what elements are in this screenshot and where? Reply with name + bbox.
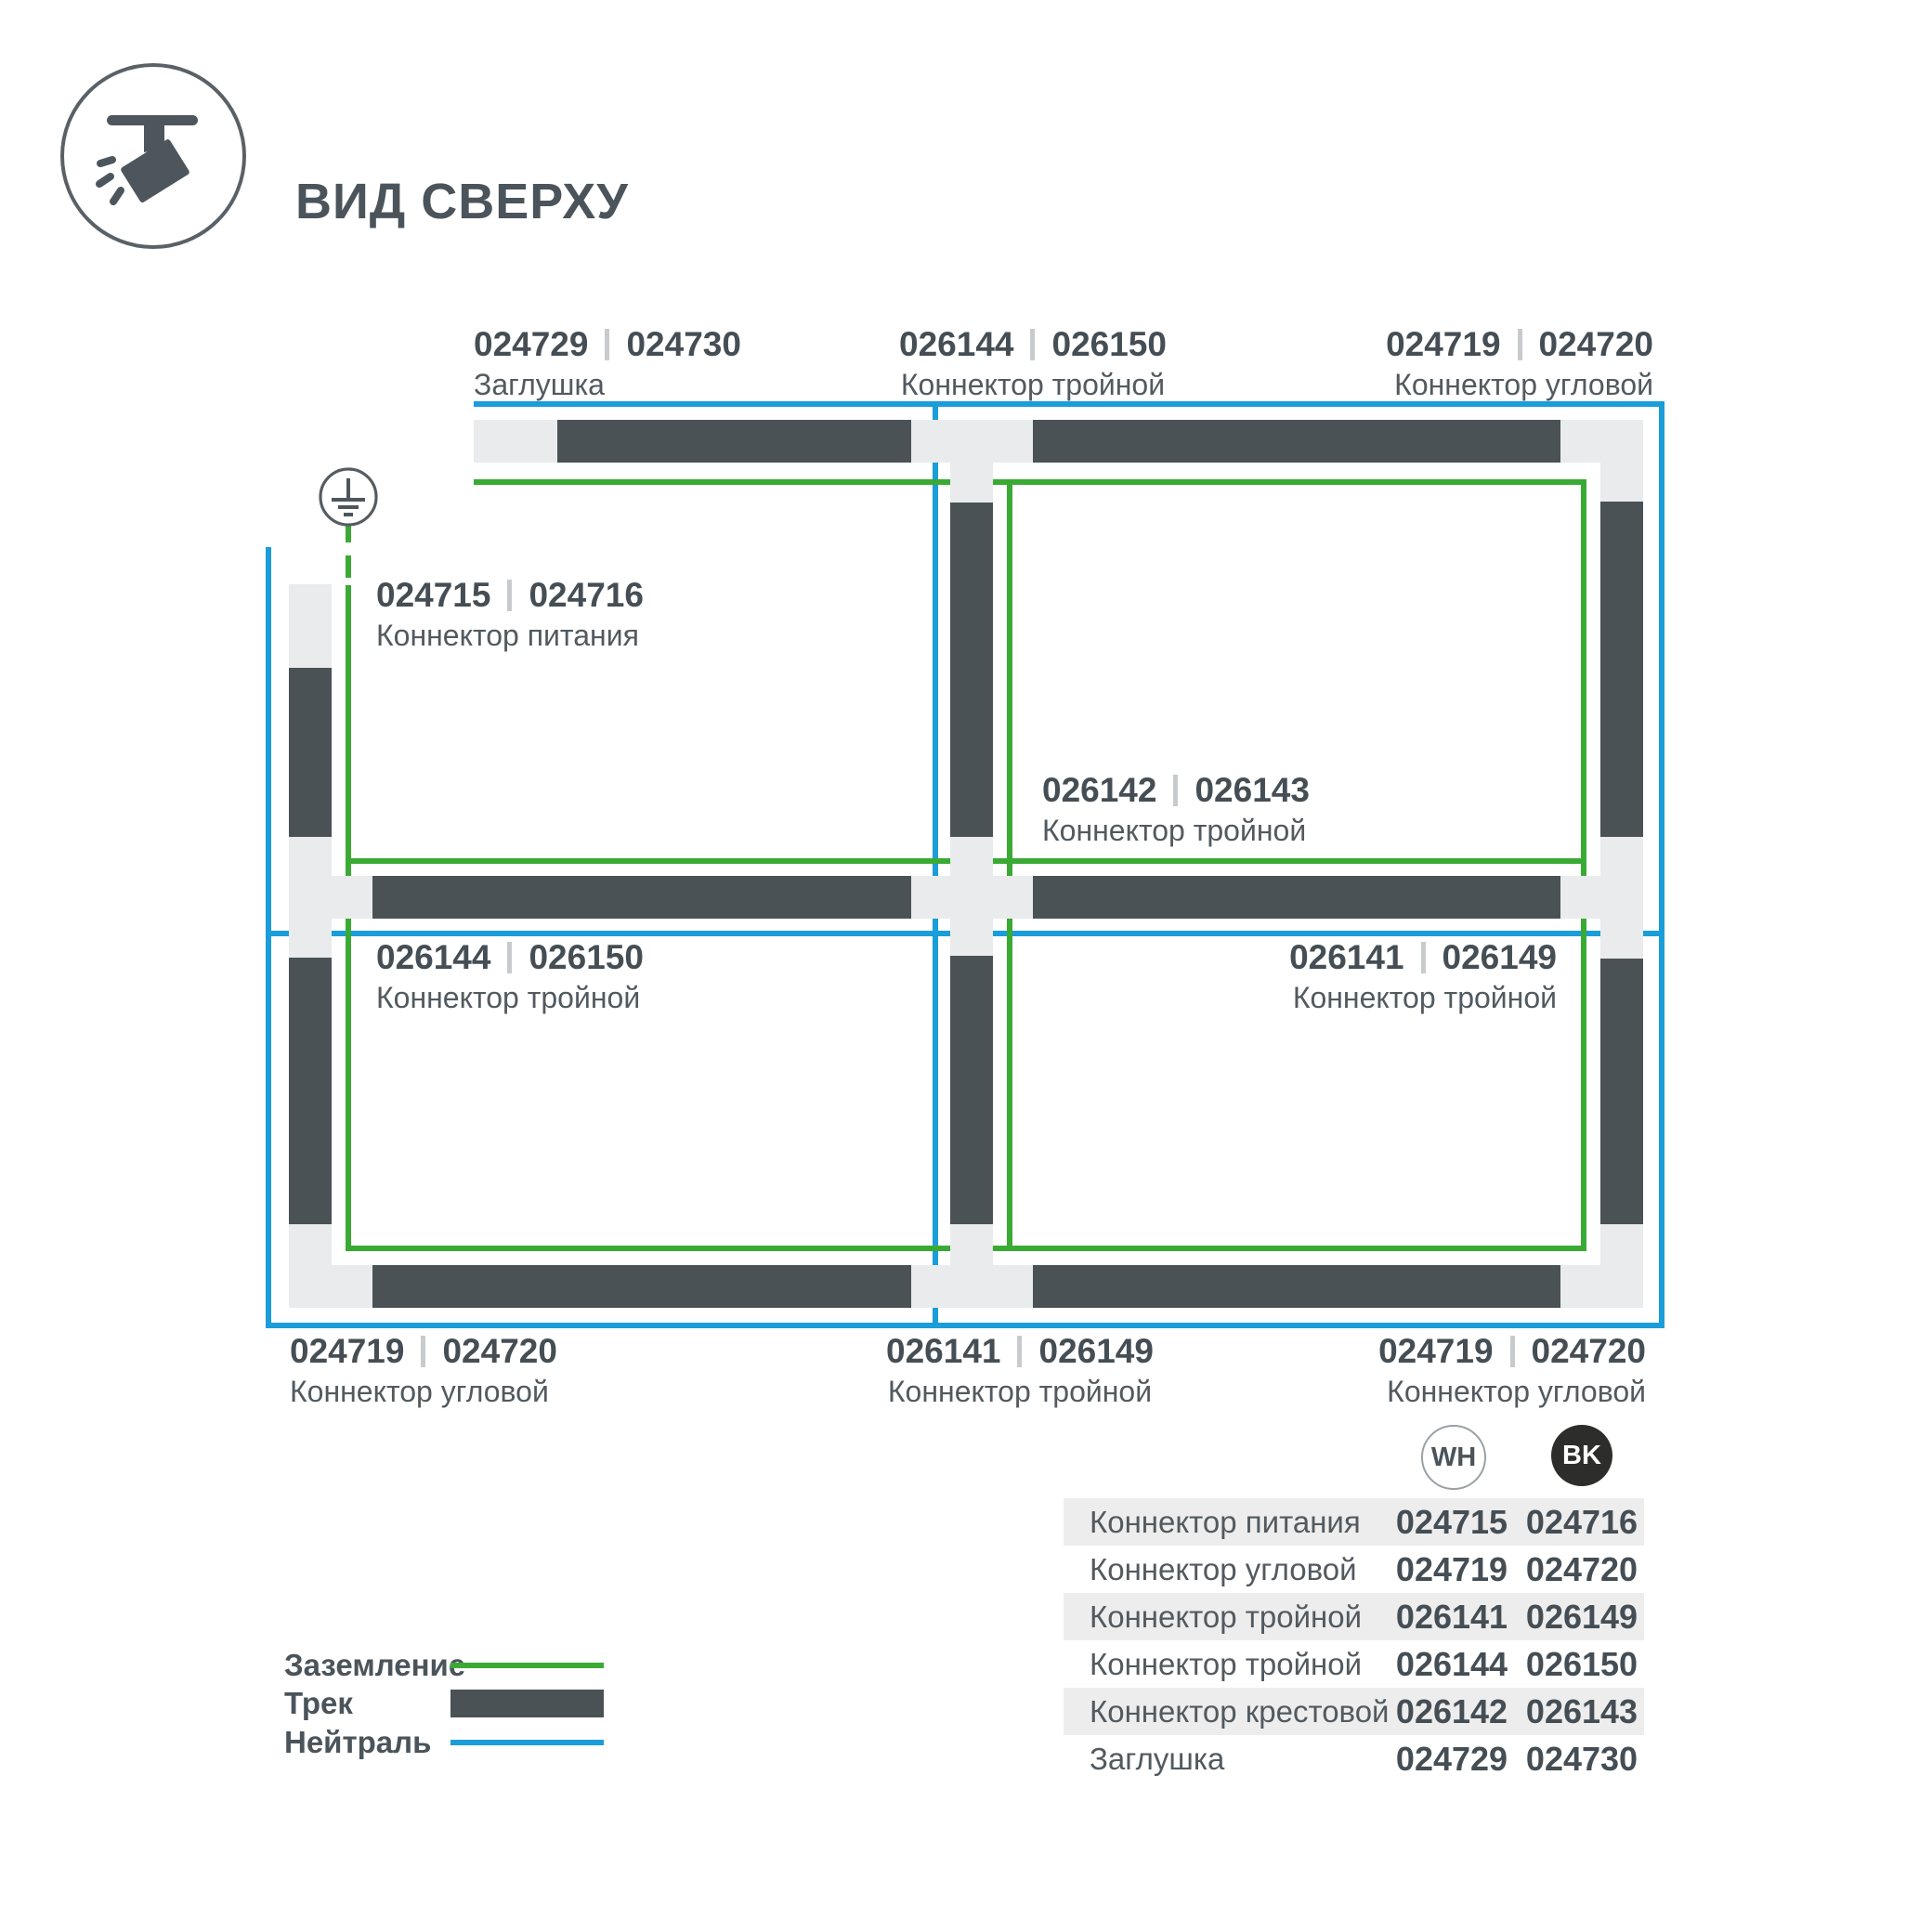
part-label-corner-top-right: 024719024720 Коннектор угловой [1386, 327, 1653, 399]
row-name: Коннектор угловой [1090, 1546, 1357, 1593]
part-name: Коннектор тройной [901, 370, 1165, 399]
table-row: Коннектор угловой 024719 024720 [1064, 1546, 1644, 1593]
code-wh: 024729 [474, 327, 588, 361]
table-row: Коннектор тройной 026141 026149 [1064, 1593, 1644, 1640]
part-codes: 024715024716 [376, 578, 644, 612]
part-label-t-connector-left: 026144026150 Коннектор тройной [376, 940, 644, 1012]
row-code-bk: 024716 [1508, 1498, 1656, 1546]
neutral-line-middle-vertical [933, 401, 938, 1328]
power-connector-block-left [289, 584, 332, 668]
ground-line-center-vertical [1007, 479, 1012, 1251]
part-label-cross-connector: 026142026143 Коннектор тройной [1042, 773, 1310, 845]
page-title: ВИД СВЕРХУ [295, 173, 629, 230]
top-view-scheme-page: ВИД СВЕРХУ [0, 0, 1932, 1932]
neutral-line-right [1659, 401, 1664, 1328]
row-code-wh: 026142 [1377, 1688, 1526, 1735]
ground-line-top-left [474, 479, 950, 485]
row-name: Коннектор крестовой [1090, 1688, 1390, 1735]
table-row: Коннектор крестовой 026142 026143 [1064, 1688, 1644, 1735]
corner-connector-block-bottom-right [1560, 1265, 1643, 1308]
code-bk: 026149 [1442, 940, 1557, 974]
track-segment [950, 956, 993, 1224]
color-chip-black-label: BK [1562, 1441, 1601, 1471]
track-segment [372, 1265, 911, 1308]
t-connector-block-left [289, 837, 332, 958]
part-label-power-connector: 024715024716 Коннектор питания [376, 578, 644, 650]
t-connector-block-bottom-stem [950, 1224, 993, 1265]
part-label-end-cap: 024729024730 Заглушка [474, 327, 741, 399]
t-connector-block-left-arm [332, 876, 372, 919]
part-name: Коннектор тройной [376, 983, 644, 1012]
code-wh: 026141 [886, 1334, 1000, 1368]
neutral-line-left [266, 547, 271, 1328]
t-connector-block-bottom [911, 1265, 1033, 1308]
track-segment [289, 958, 332, 1224]
code-separator [421, 1336, 425, 1367]
ground-lead-dashed-line [343, 520, 354, 589]
ground-line-top-right [993, 479, 1586, 485]
cross-connector-block-horizontal [911, 876, 1033, 919]
track-segment [557, 420, 911, 463]
track-segment [1033, 420, 1560, 463]
row-code-wh: 024719 [1377, 1546, 1526, 1593]
earth-ground-icon [318, 466, 379, 528]
part-name: Заглушка [474, 370, 741, 399]
ground-line-bottom-left [346, 1246, 950, 1251]
t-connector-block-top [911, 420, 1033, 463]
track-spotlight-icon [59, 61, 248, 251]
part-name: Коннектор угловой [1394, 370, 1653, 399]
t-connector-block-right [1600, 837, 1643, 959]
code-wh: 026142 [1042, 773, 1156, 807]
table-row: Заглушка 024729 024730 [1064, 1735, 1644, 1782]
code-bk: 024720 [442, 1334, 556, 1368]
legend-ground-swatch [450, 1663, 604, 1668]
part-name: Коннектор питания [376, 620, 644, 650]
part-label-t-connector-top: 026144026150 Коннектор тройной [899, 327, 1167, 399]
code-separator [1518, 329, 1522, 360]
code-bk: 026150 [1052, 327, 1167, 361]
part-codes: 024729024730 [474, 327, 741, 361]
row-name: Коннектор питания [1090, 1498, 1361, 1546]
row-code-bk: 024730 [1508, 1735, 1656, 1782]
color-chip-white: WH [1421, 1425, 1486, 1490]
part-name: Коннектор тройной [1293, 983, 1557, 1012]
color-chip-black: BK [1551, 1425, 1612, 1486]
code-separator [507, 580, 512, 611]
code-wh: 026144 [376, 940, 490, 974]
track-segment [372, 876, 911, 919]
part-codes: 026141026149 [886, 1334, 1154, 1368]
part-name: Коннектор тройной [1042, 816, 1310, 845]
code-separator [1173, 775, 1178, 806]
code-bk: 026150 [529, 940, 643, 974]
row-name: Коннектор тройной [1090, 1640, 1362, 1688]
color-chip-white-label: WH [1431, 1442, 1476, 1473]
part-name: Коннектор тройной [888, 1377, 1152, 1406]
part-codes: 024719024720 [1378, 1334, 1646, 1368]
row-code-bk: 026149 [1508, 1593, 1656, 1640]
row-code-wh: 024715 [1377, 1498, 1526, 1546]
legend-label-track: Трек [284, 1687, 353, 1720]
part-name: Коннектор угловой [1387, 1377, 1646, 1406]
code-wh: 026144 [899, 327, 1013, 361]
ground-line-right-vertical [1581, 479, 1586, 1251]
table-row: Коннектор питания 024715 024716 [1064, 1498, 1644, 1546]
row-code-bk: 024720 [1508, 1546, 1656, 1593]
code-bk: 024716 [529, 578, 643, 612]
corner-connector-block-top-right-leg [1600, 420, 1643, 502]
t-connector-block-top-stem [950, 463, 993, 503]
row-name: Коннектор тройной [1090, 1593, 1362, 1640]
part-codes: 026142026143 [1042, 773, 1310, 807]
track-segment [1600, 502, 1643, 837]
code-separator [1018, 1336, 1023, 1367]
neutral-line-bottom [266, 1323, 1664, 1328]
t-connector-block-right-arm [1560, 876, 1600, 919]
code-bk: 026149 [1039, 1334, 1154, 1368]
legend-track-swatch [450, 1690, 604, 1717]
code-separator [1031, 329, 1036, 360]
legend-label-ground: Заземление [284, 1649, 465, 1682]
row-name: Заглушка [1090, 1735, 1224, 1782]
legend-neutral-swatch [450, 1740, 604, 1745]
part-codes: 026144026150 [376, 940, 644, 974]
row-code-wh: 026141 [1377, 1593, 1526, 1640]
part-label-t-connector-right: 026141026149 Коннектор тройной [1289, 940, 1557, 1012]
code-wh: 024719 [1378, 1334, 1493, 1368]
row-code-wh: 026144 [1377, 1640, 1526, 1688]
track-segment [1033, 1265, 1560, 1308]
code-wh: 024719 [290, 1334, 404, 1368]
part-label-corner-bottom-right: 024719024720 Коннектор угловой [1378, 1334, 1646, 1406]
row-code-wh: 024729 [1377, 1735, 1526, 1782]
ground-line-bottom-right [993, 1246, 1586, 1251]
table-row: Коннектор тройной 026144 026150 [1064, 1640, 1644, 1688]
track-segment [1033, 876, 1560, 919]
corner-connector-block-bottom-left [289, 1265, 372, 1308]
code-bk: 026143 [1194, 773, 1309, 807]
part-label-t-connector-bottom: 026141026149 Коннектор тройной [886, 1334, 1154, 1406]
code-bk: 024730 [626, 327, 740, 361]
code-separator [1421, 942, 1426, 973]
legend-label-neutral: Нейтраль [284, 1726, 431, 1759]
part-codes: 024719024720 [290, 1334, 557, 1368]
row-code-bk: 026143 [1508, 1688, 1656, 1735]
code-wh: 024715 [376, 578, 490, 612]
code-bk: 024720 [1532, 1334, 1646, 1368]
part-name: Коннектор угловой [290, 1377, 557, 1406]
code-separator [1510, 1336, 1515, 1367]
code-wh: 024719 [1386, 327, 1500, 361]
track-segment [950, 503, 993, 837]
end-cap-block-top [474, 420, 557, 463]
row-code-bk: 026150 [1508, 1640, 1656, 1688]
part-codes: 026144026150 [899, 327, 1167, 361]
neutral-line-top [474, 401, 1664, 407]
code-bk: 024720 [1539, 327, 1653, 361]
code-separator [507, 942, 512, 973]
ground-line-middle-right [993, 858, 1586, 864]
code-wh: 026141 [1289, 940, 1403, 974]
part-label-corner-bottom-left: 024719024720 Коннектор угловой [290, 1334, 557, 1406]
track-segment [289, 668, 332, 837]
track-segment [1600, 959, 1643, 1224]
part-codes: 026141026149 [1289, 940, 1557, 974]
parts-table: Коннектор питания 024715 024716 Коннекто… [1064, 1498, 1644, 1782]
part-codes: 024719024720 [1386, 327, 1653, 361]
code-separator [605, 329, 609, 360]
ground-line-middle-left [346, 858, 950, 864]
